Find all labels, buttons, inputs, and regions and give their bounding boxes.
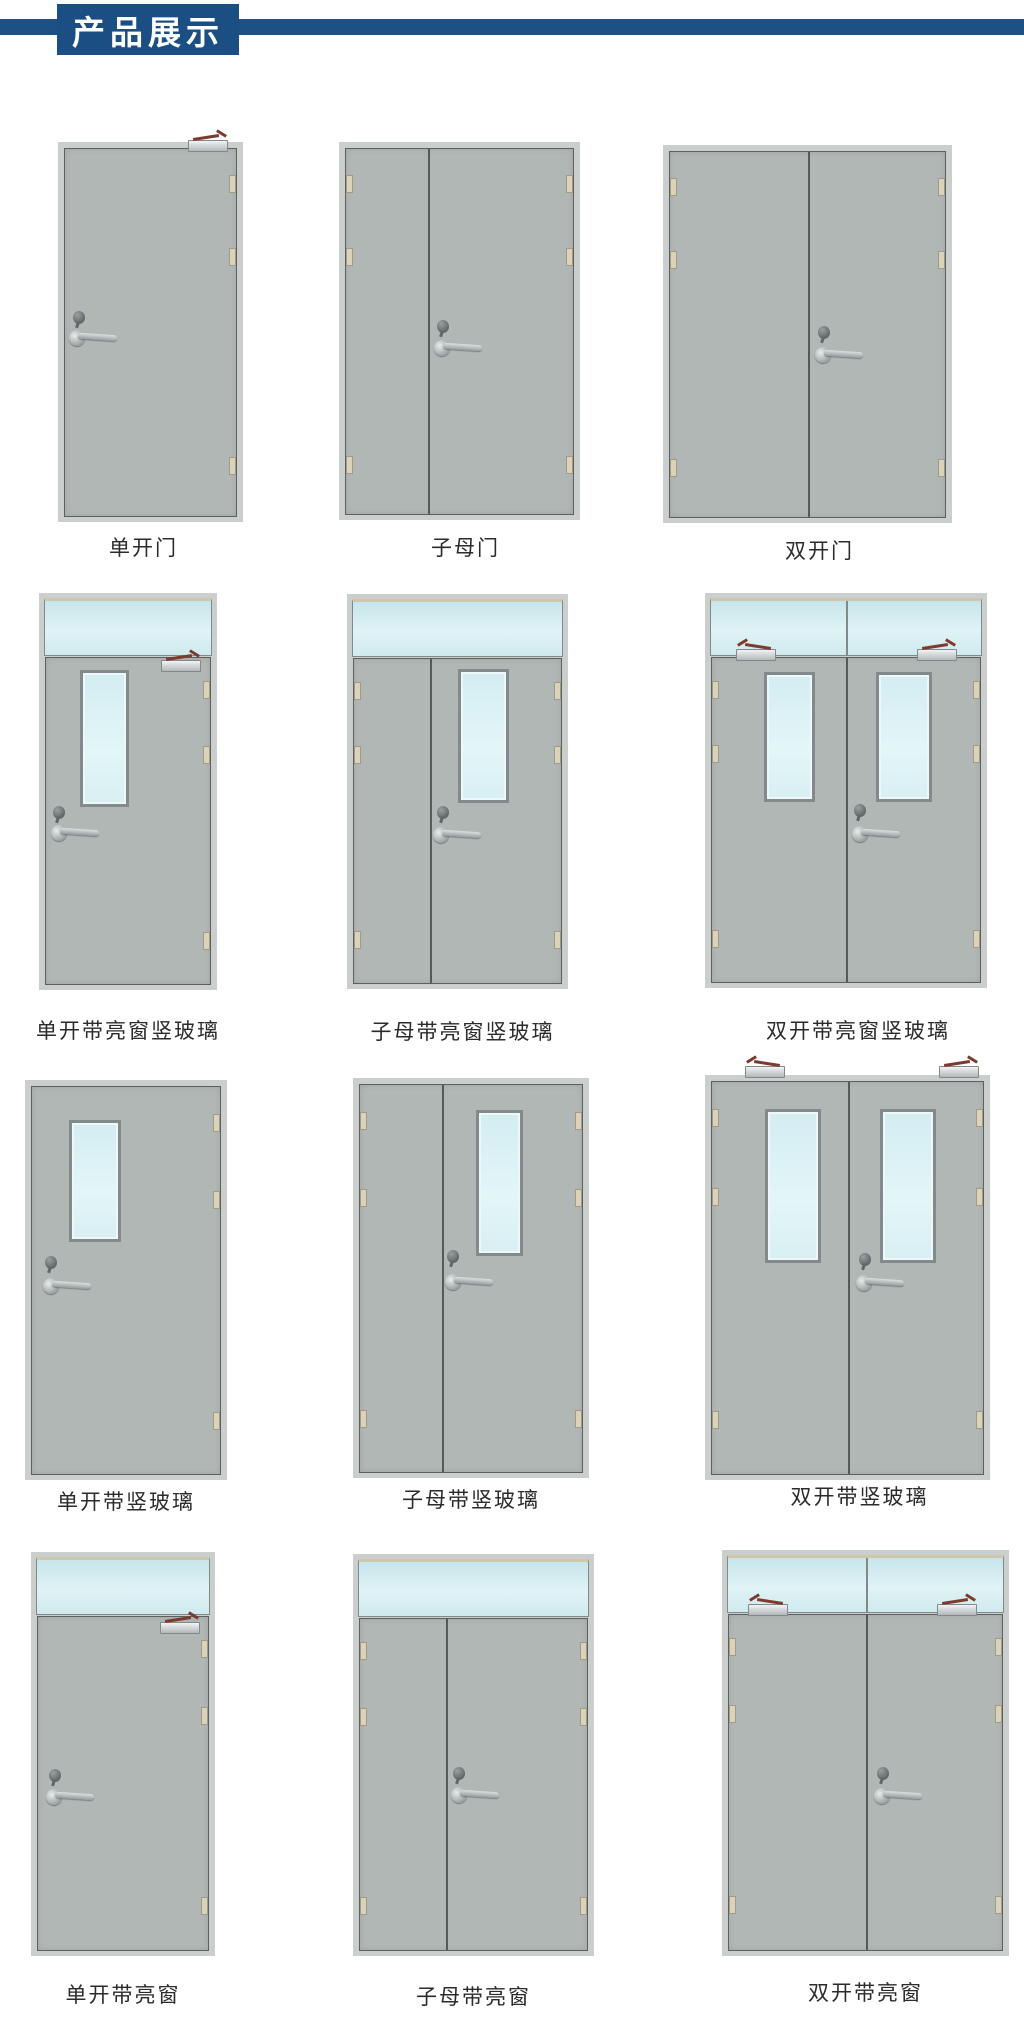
keyhole — [437, 806, 449, 819]
door-hinge — [360, 1410, 367, 1428]
door-figure-mother-child: 子母门 — [339, 142, 580, 520]
door-closer — [188, 140, 228, 152]
door-closer — [937, 1604, 977, 1616]
door-hinge — [354, 682, 361, 700]
door-hinge — [213, 1191, 220, 1209]
door-frame — [705, 593, 987, 988]
transom-window — [352, 599, 563, 657]
product-label: 子母门 — [321, 532, 610, 562]
door-hinge — [973, 930, 980, 948]
door-hinge — [360, 1189, 367, 1207]
product-label: 单开带竖玻璃 — [0, 1486, 257, 1516]
door-hinge — [575, 1189, 582, 1207]
product-label: 单开带亮窗竖玻璃 — [9, 1015, 247, 1045]
door-figure-mother-child-transom-glass: 子母带亮窗竖玻璃 — [347, 594, 568, 989]
door-closer — [160, 1622, 200, 1634]
keyhole — [73, 311, 85, 324]
door-closer — [748, 1604, 788, 1616]
door-hinge — [346, 456, 353, 474]
door-hinge — [201, 1897, 208, 1915]
door-hinge — [203, 932, 210, 950]
lever-handle — [852, 826, 902, 842]
door-hinge — [346, 175, 353, 193]
door-figure-mother-child-glass: 子母带竖玻璃 — [353, 1078, 589, 1478]
door-frame — [58, 142, 243, 522]
door-hinge — [729, 1896, 736, 1914]
lever-handle — [451, 1787, 501, 1803]
door-frame — [353, 1554, 594, 1956]
door-hinge — [354, 931, 361, 949]
door-frame — [339, 142, 580, 520]
door-hinge — [580, 1642, 587, 1660]
vision-glass — [880, 1109, 936, 1263]
door-figure-double-transom-glass: 双开带亮窗竖玻璃 — [705, 593, 987, 988]
door-closer — [745, 1066, 785, 1078]
transom-window — [358, 1559, 589, 1617]
door-hinge — [712, 1188, 719, 1206]
page-title: 产品展示 — [72, 6, 224, 54]
door-hinge — [712, 681, 719, 699]
door-figure-single-transom-glass: 单开带亮窗竖玻璃 — [39, 593, 217, 990]
vision-glass — [876, 672, 933, 802]
door-hinge — [580, 1708, 587, 1726]
door-hinge — [213, 1114, 220, 1132]
door-leaves — [345, 148, 574, 515]
door-hinge — [729, 1638, 736, 1656]
door-hinge — [995, 1638, 1002, 1656]
transom-window — [36, 1557, 210, 1615]
header-badge: 产品展示 — [57, 4, 239, 55]
door-figure-mother-child-transom: 子母带亮窗 — [353, 1554, 594, 1956]
door-hinge — [575, 1410, 582, 1428]
door-figure-double: 双开门 — [663, 145, 952, 523]
product-label: 单开门 — [14, 532, 273, 562]
door-hinge — [712, 1411, 719, 1429]
product-label: 子母带亮窗竖玻璃 — [327, 1016, 598, 1046]
door-hinge — [670, 251, 677, 269]
transom-window — [710, 598, 982, 656]
door-leaf — [37, 1616, 209, 1951]
door-frame — [39, 593, 217, 990]
door-hinge — [203, 746, 210, 764]
door-hinge — [729, 1705, 736, 1723]
door-hinge — [712, 745, 719, 763]
product-label: 子母带亮窗 — [323, 1981, 624, 2011]
keyhole — [453, 1767, 465, 1780]
door-hinge — [938, 459, 945, 477]
door-hinge — [213, 1412, 220, 1430]
door-figure-single-glass: 单开带竖玻璃 — [25, 1080, 227, 1480]
door-figure-single-transom: 单开带亮窗 — [31, 1552, 215, 1956]
lever-handle — [51, 825, 101, 841]
door-hinge — [346, 248, 353, 266]
keyhole — [859, 1253, 871, 1266]
door-hinge — [995, 1896, 1002, 1914]
lever-handle — [43, 1278, 93, 1294]
door-hinge — [201, 1707, 208, 1725]
product-label: 双开带亮窗 — [692, 1977, 1024, 2007]
door-hinge — [712, 930, 719, 948]
door-frame — [353, 1078, 589, 1478]
door-hinge — [554, 746, 561, 764]
product-label: 双开带竖玻璃 — [699, 1481, 1020, 1511]
lever-handle — [46, 1789, 96, 1805]
door-closer — [736, 649, 776, 661]
door-leaves — [669, 151, 946, 518]
door-hinge — [554, 931, 561, 949]
door-hinge — [973, 681, 980, 699]
product-label: 双开带亮窗竖玻璃 — [699, 1015, 1017, 1045]
door-hinge — [995, 1705, 1002, 1723]
vision-glass — [80, 670, 129, 807]
door-hinge — [976, 1411, 983, 1429]
lever-handle — [856, 1275, 906, 1291]
door-frame — [722, 1550, 1009, 1956]
door-frame — [347, 594, 568, 989]
lever-handle — [815, 347, 865, 363]
door-hinge — [566, 175, 573, 193]
door-leaves — [711, 1081, 984, 1475]
lever-handle — [433, 827, 483, 843]
door-hinge — [229, 248, 236, 266]
lever-handle — [874, 1788, 924, 1804]
door-frame — [663, 145, 952, 523]
door-hinge — [554, 682, 561, 700]
lever-handle — [69, 330, 119, 346]
door-hinge — [360, 1112, 367, 1130]
transom-window — [44, 598, 212, 656]
door-frame — [705, 1075, 990, 1480]
door-hinge — [973, 745, 980, 763]
door-closer — [917, 649, 957, 661]
door-leaves — [711, 657, 981, 983]
keyhole — [437, 320, 449, 333]
door-hinge — [566, 456, 573, 474]
door-hinge — [201, 1640, 208, 1658]
door-closer — [939, 1066, 979, 1078]
door-hinge — [580, 1897, 587, 1915]
door-figure-double-glass: 双开带竖玻璃 — [705, 1075, 990, 1480]
door-frame — [25, 1080, 227, 1480]
product-display-page: 产品展示 单开门 子母 — [0, 0, 1024, 2042]
vision-glass — [764, 672, 815, 802]
product-label: 子母带竖玻璃 — [323, 1484, 619, 1514]
door-closer — [161, 660, 201, 672]
door-figure-single: 单开门 — [58, 142, 243, 522]
door-hinge — [566, 248, 573, 266]
lever-handle — [445, 1274, 495, 1290]
door-hinge — [354, 746, 361, 764]
door-hinge — [976, 1109, 983, 1127]
vision-glass — [69, 1120, 120, 1242]
lever-handle — [434, 340, 484, 356]
vision-glass — [765, 1109, 821, 1263]
door-hinge — [360, 1642, 367, 1660]
keyhole — [818, 326, 830, 339]
door-hinge — [670, 178, 677, 196]
door-hinge — [360, 1708, 367, 1726]
door-hinge — [575, 1112, 582, 1130]
door-hinge — [670, 459, 677, 477]
door-leaves — [359, 1618, 588, 1951]
door-leaves — [728, 1614, 1003, 1951]
door-hinge — [229, 457, 236, 475]
door-hinge — [229, 175, 236, 193]
vision-glass — [476, 1110, 523, 1256]
product-label: 单开带亮窗 — [1, 1979, 245, 2009]
door-frame — [31, 1552, 215, 1956]
door-figure-double-transom: 双开带亮窗 — [722, 1550, 1009, 1956]
door-hinge — [203, 681, 210, 699]
keyhole — [53, 806, 65, 819]
vision-glass — [458, 669, 509, 803]
door-hinge — [938, 251, 945, 269]
door-hinge — [976, 1188, 983, 1206]
door-hinge — [360, 1897, 367, 1915]
door-hinge — [938, 178, 945, 196]
door-hinge — [712, 1109, 719, 1127]
product-label: 双开门 — [657, 535, 982, 565]
